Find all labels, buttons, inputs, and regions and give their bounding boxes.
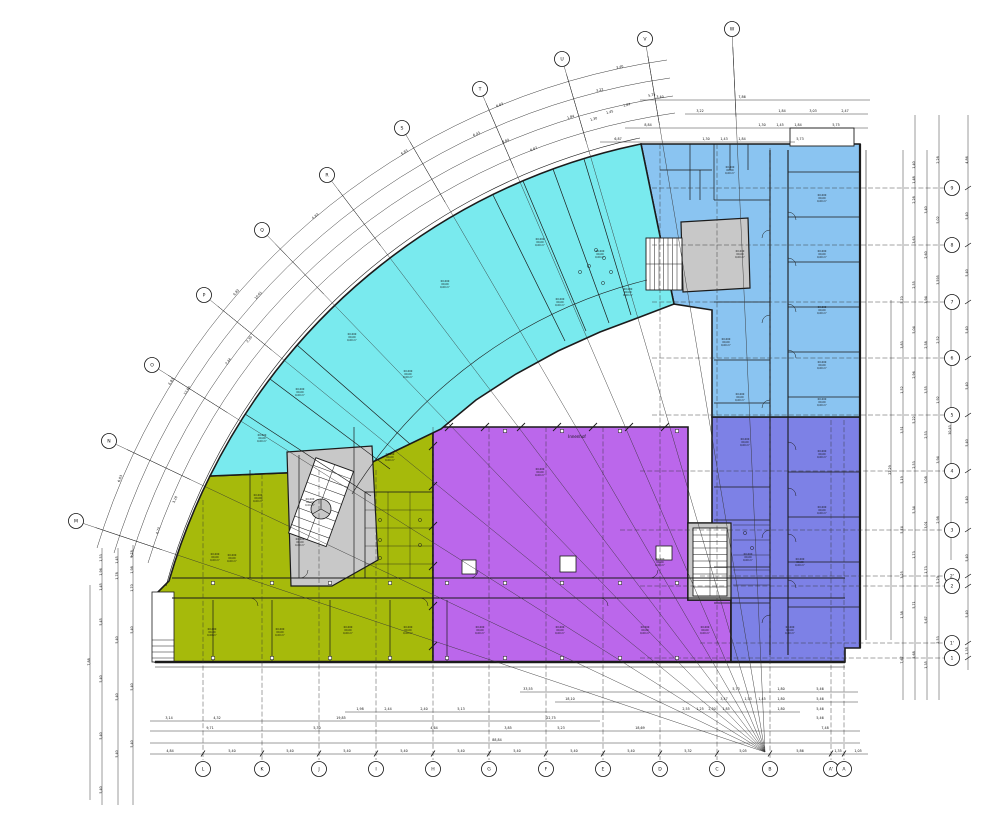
dimension-value: 5,40 xyxy=(130,626,134,633)
dimension-value: 1,35 xyxy=(965,647,969,654)
dimension-value: 5,40 xyxy=(965,269,969,276)
dimension-value: 7,88 xyxy=(87,658,91,665)
grid-node xyxy=(503,656,506,659)
dimension-value: 5,68 xyxy=(912,651,916,658)
dimension-value: 3,55 xyxy=(924,386,928,393)
room-label: 00.00000,000,00 m² xyxy=(227,553,237,563)
grid-node xyxy=(618,581,621,584)
arc-dim-tick xyxy=(96,528,162,550)
arc-dim-tick xyxy=(127,450,190,480)
room-label: 00.00000,000,00 m² xyxy=(475,625,485,635)
dimension-value: 5,13 xyxy=(457,707,464,711)
room-label: 00.00000,000,00 m² xyxy=(735,392,745,402)
room-label: 00.00000,000,00 m² xyxy=(535,467,545,477)
dimension-value: 1,45 xyxy=(758,697,765,701)
dimension-value: 88,84 xyxy=(492,738,501,742)
dimension-value: 3,85 xyxy=(504,726,511,730)
room-label: 00.00000,000,00 m² xyxy=(817,449,827,459)
dimension-value: 4,84 xyxy=(166,749,173,753)
grid-bubble-label: E xyxy=(602,767,605,773)
dimension-value: 5,40 xyxy=(965,382,969,389)
dimension-value: 2,78 xyxy=(130,550,134,557)
grid-bubble-label: 3 xyxy=(951,528,954,534)
dimension-value: 1,43 xyxy=(720,137,727,141)
dimension-value: 1,45 xyxy=(606,109,614,115)
dimension-value: 1,45 xyxy=(776,123,783,127)
room-label: 00.00000,000,00 m² xyxy=(743,552,753,562)
dimension-value: 2,47 xyxy=(841,109,848,113)
dimension-value: 1,45 xyxy=(115,556,119,563)
dimension-value: 3,40 xyxy=(924,206,928,213)
dimension-value: 18,69 xyxy=(635,726,644,730)
dimension-value: 1,96 xyxy=(99,568,103,575)
dimension-value: 2,55 xyxy=(682,707,689,711)
grid-bubble-label: W xyxy=(730,27,735,33)
grid-node xyxy=(211,656,214,659)
grid-node xyxy=(328,581,331,584)
room-label: 00.00000,000,00 m² xyxy=(640,625,650,635)
dimension-value: 30,43 xyxy=(948,425,952,434)
grid-bubble-label: L xyxy=(202,767,205,773)
dimension-value: 2,53 xyxy=(912,461,916,468)
dimension-value: 1,80 xyxy=(777,707,784,711)
grid-bubble-label: S xyxy=(401,126,404,132)
room-label: 00.00000,000,00 m² xyxy=(210,552,220,562)
dimension-value: 5,30 xyxy=(313,726,320,730)
arc-dim-tick xyxy=(338,190,380,246)
dimension-value: 22,29 xyxy=(888,465,892,474)
dimension-value: 4,86 xyxy=(965,156,969,163)
grid-bubble-label: 2 xyxy=(951,584,954,590)
grid-node xyxy=(675,656,678,659)
dimension-value: 3,03 xyxy=(809,109,816,113)
grid-node xyxy=(675,581,678,584)
room-label: 00.00000,000,00 m² xyxy=(721,337,731,347)
room-label: 00.00000,000,00 m² xyxy=(440,279,450,289)
room-label: 00.00000,000,00 m² xyxy=(403,369,413,379)
dimension-value: 3,40 xyxy=(616,64,624,69)
dimension-value: 1,35 xyxy=(834,749,841,753)
dimension-value: 5,46 xyxy=(816,697,823,701)
dimension-value: 5,71 xyxy=(912,601,916,608)
room-label: 00.00000,000,00 m² xyxy=(817,193,827,203)
dimension-value: 2,28 xyxy=(912,196,916,203)
dimension-value: 1,25 xyxy=(696,707,703,711)
dimension-value: 7,48 xyxy=(821,726,828,730)
dimension-value: 5,40 xyxy=(965,326,969,333)
dimension-value: 1,30 xyxy=(702,137,709,141)
grid-bubble-label: 6 xyxy=(951,356,954,362)
dimension-value: 5,67 xyxy=(924,616,928,623)
room-label: 00.00000,000,00 m² xyxy=(403,625,413,635)
dimension-value: 5,40 xyxy=(286,749,293,753)
dimension-value: 5,70 xyxy=(900,296,904,303)
grid-bubble-label: U xyxy=(560,57,563,63)
dimension-value: 2,44 xyxy=(384,707,391,711)
grid-node xyxy=(328,656,331,659)
grid-node xyxy=(211,581,214,584)
grid-node xyxy=(503,429,506,432)
room-label: 00.00000,000,00 m² xyxy=(343,625,353,635)
dimension-value: 5,29 xyxy=(936,576,940,583)
dimension-value: 1,85 xyxy=(722,707,729,711)
dimension-value: 5,40 xyxy=(513,749,520,753)
dimension-value: 2,53 xyxy=(936,636,940,643)
dimension-value: 3,40 xyxy=(656,95,663,99)
dimension-value: 5,45 xyxy=(99,618,103,625)
dimension-value: 6,83 xyxy=(311,212,319,220)
grid-node xyxy=(445,581,448,584)
arc-dim-tick xyxy=(168,375,227,412)
dimension-value: 12,60 xyxy=(183,385,191,395)
dimension-value: 5,02 xyxy=(936,216,940,223)
room-label: 00.00000,000,00 m² xyxy=(595,249,605,259)
room-label: 00.00000,000,00 m² xyxy=(817,249,827,259)
grid-bubble-label: I xyxy=(375,767,376,773)
dimension-value: 18,10 xyxy=(565,697,574,701)
dimension-value: 3,14 xyxy=(165,716,172,720)
dimension-value: 1,53 xyxy=(744,697,751,701)
dimension-value: 1,70 xyxy=(130,584,134,591)
arc-dim-tick xyxy=(567,74,587,141)
dimension-value: 1,80 xyxy=(777,687,784,691)
dimension-value: 5,73 xyxy=(796,137,803,141)
dimension-value: 1,30 xyxy=(590,116,598,122)
dimension-value: 5,40 xyxy=(627,749,634,753)
dimension-value: 1,84 xyxy=(623,102,631,108)
grid-bubble-label: 1' xyxy=(950,641,954,647)
dimension-value: 5,40 xyxy=(115,750,119,757)
grid-bubble-label: O xyxy=(150,363,154,369)
dimension-value: 1,45 xyxy=(99,583,103,590)
dimension-value: 1,40 xyxy=(912,161,916,168)
dimension-value: 5,40 xyxy=(228,749,235,753)
dimension-value: 2,58 xyxy=(924,341,928,348)
floor-plan-stage: MNOPQRSTUVWLKJIHGFEDCBA'A98765432'21'1 3… xyxy=(0,0,999,820)
dimension-value: 5,40 xyxy=(457,749,464,753)
dimension-value: 5,40 xyxy=(99,675,103,682)
dimension-value: 5,34 xyxy=(912,506,916,513)
dimension-value: 5,40 xyxy=(400,749,407,753)
room-label: 00.00000,000,00 m² xyxy=(655,557,665,567)
dimension-value: 1,53 xyxy=(99,554,103,561)
dimension-value: 4,64 xyxy=(430,726,437,730)
dimension-value: 1,84 xyxy=(738,137,745,141)
room-label: 00.00000,000,00 m² xyxy=(535,237,545,247)
grid-bubble-label: T xyxy=(478,87,482,93)
grid-node xyxy=(388,581,391,584)
room-label: 00.00000,000,00 m² xyxy=(555,625,565,635)
dimension-value: 1,98 xyxy=(130,566,134,573)
dimension-value: 1,84 xyxy=(794,123,801,127)
grid-bubble-label: A' xyxy=(829,767,833,773)
grid-node xyxy=(675,429,678,432)
dimension-value: 3,47 xyxy=(720,697,727,701)
dimension-value: 5,73 xyxy=(732,687,739,691)
grid-bubble-label: Q xyxy=(260,228,264,234)
grid-node xyxy=(560,429,563,432)
dimension-value: 7,67 xyxy=(900,656,904,663)
dimension-value: 3,22 xyxy=(596,87,604,93)
dimension-value: 5,74 xyxy=(900,526,904,533)
dimension-value: 5,40 xyxy=(115,693,119,700)
dimension-value: 10,61 xyxy=(254,290,263,300)
stair-top xyxy=(646,238,682,290)
grid-bubble-label: 4 xyxy=(951,469,954,475)
dimension-value: 1,38 xyxy=(900,611,904,618)
grid-bubble-label: J xyxy=(317,767,319,773)
dimension-value: 5,32 xyxy=(684,749,691,753)
dimension-value: 3,01 xyxy=(924,521,928,528)
dimension-value: 5,86 xyxy=(796,749,803,753)
dimension-value: 3,25 xyxy=(900,571,904,578)
dimension-value: 1,84 xyxy=(567,114,575,120)
dimension-value: 3,94 xyxy=(936,456,940,463)
dimension-value: 7,86 xyxy=(738,95,745,99)
dimension-value: 1,92 xyxy=(936,396,940,403)
dimension-value: 5,40 xyxy=(115,636,119,643)
room-label: 00.00000,000,00 m² xyxy=(817,305,827,315)
dimension-value: 19,85 xyxy=(336,716,345,720)
dimension-value: 3,51 xyxy=(900,426,904,433)
grid-bubble-label: 1 xyxy=(951,656,954,662)
grid-bubble-label: B xyxy=(768,767,771,773)
dimension-value: 3,83 xyxy=(900,341,904,348)
dimension-value: 1,48 xyxy=(912,176,916,183)
arc-dim-tick xyxy=(410,142,445,203)
dimension-value: 5,40 xyxy=(343,749,350,753)
arc-dim-tick xyxy=(733,47,736,117)
room-label: 00.00000,000,00 m² xyxy=(305,497,315,507)
grid-node xyxy=(618,429,621,432)
dimension-value: 5,40 xyxy=(130,683,134,690)
dimension-value: 5,46 xyxy=(816,687,823,691)
dimension-value: 5,40 xyxy=(99,786,103,793)
room-label: 00.00000,000,00 m² xyxy=(817,360,827,370)
grid-bubble-label: C xyxy=(715,767,718,773)
dimension-value: 1,80 xyxy=(777,697,784,701)
room-label: 00.00000,000,00 m² xyxy=(253,493,263,503)
room-label: 00.00000,000,00 m² xyxy=(555,297,565,307)
grid-node xyxy=(560,656,563,659)
dimension-value: 1,35 xyxy=(924,661,928,668)
dimension-value: 33,55 xyxy=(523,687,532,691)
grid-node xyxy=(560,581,563,584)
dimension-value: 2,28 xyxy=(936,156,940,163)
grid-bubble-label: 5 xyxy=(951,413,954,419)
dimension-value: 3,08 xyxy=(924,476,928,483)
room-label: 00.00000,000,00 m² xyxy=(623,287,633,297)
dimension-value: 4,32 xyxy=(213,716,220,720)
dimension-value: 1,84 xyxy=(778,109,785,113)
dimension-value: 2,30 xyxy=(245,335,253,343)
dimension-value: 5,40 xyxy=(965,496,969,503)
dimension-value: 9,71 xyxy=(206,726,213,730)
dimension-value: 1,98 xyxy=(356,707,363,711)
dimension-value: 5,75 xyxy=(832,123,839,127)
dimension-value: 1,52 xyxy=(900,386,904,393)
arc-dim-tick xyxy=(275,244,324,294)
room-label: 00.00000,000,00 m² xyxy=(740,437,750,447)
dimension-value: 1,73 xyxy=(924,566,928,573)
room-label: 00.00000,000,00 m² xyxy=(725,165,735,175)
dimension-value: 5,19 xyxy=(900,476,904,483)
room-label: 00.00000,000,00 m² xyxy=(795,557,805,567)
dimension-value: 2,96 xyxy=(912,371,916,378)
room-label: 00.00000,000,00 m² xyxy=(385,452,395,462)
room-label: 00.00000,000,00 m² xyxy=(257,433,267,443)
room-label: 00.00000,000,00 m² xyxy=(207,627,217,637)
floor-plan-canvas: MNOPQRSTUVWLKJIHGFEDCBA'A98765432'21'1 3… xyxy=(0,0,999,820)
grid-bubble-label: G xyxy=(487,767,491,773)
grid-bubble-label: P xyxy=(203,293,206,299)
dimension-value: 5,46 xyxy=(816,716,823,720)
room-label: 00.00000,000,00 m² xyxy=(817,397,827,407)
dimension-value: 1,73 xyxy=(912,551,916,558)
dimension-value: 1,78 xyxy=(115,572,119,579)
grid-bubble-label: 9 xyxy=(951,186,954,192)
arc-dim-tick xyxy=(486,103,514,167)
room-label: 00.00000,000,00 m² xyxy=(275,627,285,637)
grid-bubble-label: H xyxy=(431,767,434,773)
dimension-value: 5,23 xyxy=(557,726,564,730)
dimension-value: 3,595 xyxy=(936,275,940,284)
dimension-value: 1,05 xyxy=(854,749,861,753)
dimension-value: 5,05 xyxy=(739,749,746,753)
room-label: 00.00000,000,00 m² xyxy=(817,505,827,515)
grid-node xyxy=(503,581,506,584)
dimension-value: 5,40 xyxy=(570,749,577,753)
room-label: 00.00000,000,00 m² xyxy=(347,332,357,342)
dimension-value: 5,40 xyxy=(99,732,103,739)
dimension-value: 1,30 xyxy=(758,123,765,127)
dimension-value: 3,22 xyxy=(696,109,703,113)
grid-node xyxy=(618,656,621,659)
dimension-value: 5,22 xyxy=(912,416,916,423)
dimension-value: 3,63 xyxy=(912,236,916,243)
dimension-value: 2,98 xyxy=(936,516,940,523)
dimension-value: 5,46 xyxy=(816,707,823,711)
dimension-value: 2,52 xyxy=(936,336,940,343)
dimension-value: 6,87 xyxy=(529,146,537,152)
dimension-value: 6,83 xyxy=(495,102,503,108)
dimension-value: 6,43 xyxy=(472,131,480,138)
room-label: 00.00000,000,00 m² xyxy=(295,537,305,547)
dimension-value: 3,18 xyxy=(172,495,179,503)
room-label: 00.00000,000,00 m² xyxy=(295,387,305,397)
grid-node xyxy=(445,656,448,659)
arc-dim-tick xyxy=(648,56,660,125)
grid-bubble-label: F xyxy=(545,767,548,773)
dimension-value: 5,04 xyxy=(912,326,916,333)
grid-bubble-label: 8 xyxy=(951,243,954,249)
dimension-value: 8,84 xyxy=(501,138,509,145)
dimension-value: 5,40 xyxy=(965,610,969,617)
dimension-value: 5,40 xyxy=(965,212,969,219)
dimension-value: 6,83 xyxy=(400,149,408,156)
dimension-value: 5,40 xyxy=(965,554,969,561)
dimension-value: 3,94 xyxy=(924,296,928,303)
grid-bubble-label: 7 xyxy=(951,300,954,306)
grid-bubble-label: D xyxy=(658,767,662,773)
dimension-value: 22,75 xyxy=(546,716,555,720)
dimension-value: 6,87 xyxy=(614,137,621,141)
dimension-value: 4,70 xyxy=(155,527,161,535)
room-label: 00.00000,000,00 m² xyxy=(785,625,795,635)
grid-node xyxy=(388,656,391,659)
dimension-value: 2,60 xyxy=(924,251,928,258)
grid-node xyxy=(270,656,273,659)
dimension-value: 5,40 xyxy=(130,740,134,747)
dimension-value: 2,40 xyxy=(420,707,427,711)
room-label: 00.00000,000,00 m² xyxy=(700,625,710,635)
room-label: 00.00000,000,00 m² xyxy=(735,249,745,259)
grid-bubble-label: N xyxy=(107,439,110,445)
dimension-value: 2,53 xyxy=(924,431,928,438)
grid-node xyxy=(270,581,273,584)
dimension-value: 2,44 xyxy=(224,357,232,365)
dimension-value: 5,40 xyxy=(965,439,969,446)
courtyard-label: Innenhof xyxy=(568,434,586,439)
dimension-value: 2,55 xyxy=(912,281,916,288)
dimension-value: 2,30 xyxy=(708,707,715,711)
grid-bubble-label: M xyxy=(74,519,78,525)
dimension-value: 8,84 xyxy=(644,123,651,127)
